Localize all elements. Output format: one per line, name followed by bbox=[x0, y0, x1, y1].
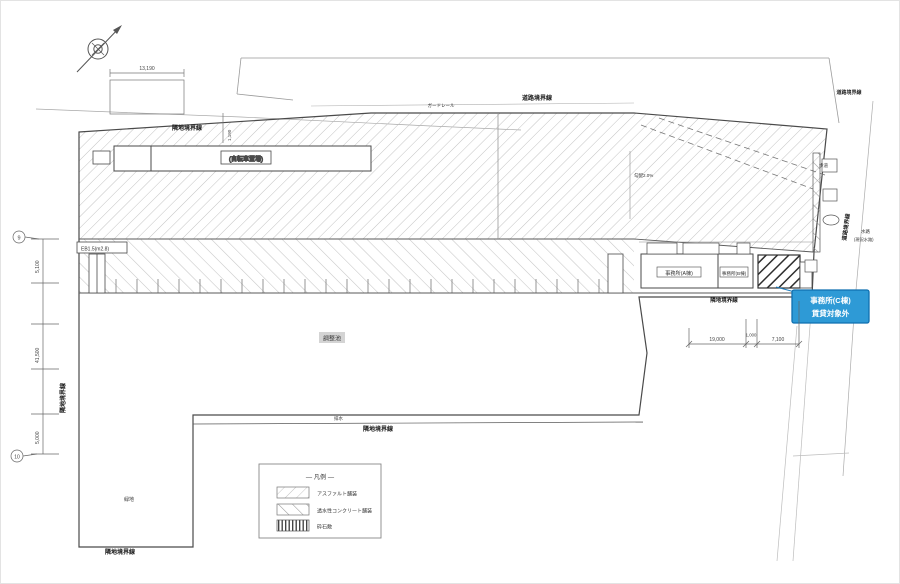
guardrail-label: ガードレール bbox=[428, 102, 455, 109]
legend-swatch-asphalt bbox=[277, 487, 309, 498]
pond-label-group: 調整池 bbox=[319, 332, 345, 343]
ref-mark-top: 9 bbox=[17, 236, 20, 242]
building-c bbox=[758, 255, 812, 292]
legend-label-permeable: 透水性コンクリート舗装 bbox=[317, 508, 372, 515]
boundary-label-top-right: 道路境界線 bbox=[836, 89, 861, 96]
boundary-label-bottom-left: 隣地境界線 bbox=[105, 548, 135, 556]
sidewalk-label: 歩道 bbox=[819, 162, 828, 169]
green-label: 緑地 bbox=[124, 496, 134, 503]
dim-left-mid: 41,500 bbox=[35, 347, 41, 363]
legend: ― 凡例 ― アスファルト舗装 透水性コンクリート舗装 砕石敷 bbox=[259, 464, 381, 538]
callout-building-c: 事務所(C棟) 賃貸対象外 bbox=[792, 290, 869, 323]
dim-br-c: 7,100 bbox=[772, 337, 785, 343]
slope-label: 勾配2.0% bbox=[634, 172, 653, 179]
dim-br-b: 1,000 bbox=[746, 333, 757, 338]
waterway-label-1: 水路 bbox=[861, 228, 870, 235]
boundary-label-bottom-right: 隣地境界線 bbox=[710, 296, 738, 304]
legend-label-asphalt: アスファルト舗装 bbox=[317, 491, 357, 498]
drainage-label: 排水 bbox=[334, 415, 343, 422]
left-note-label: EB1.5(m2.8) bbox=[81, 247, 109, 253]
legend-swatch-gravel bbox=[277, 520, 309, 531]
site-plan-page: (自転車置場) EB1.5(m2.8) 事務所(A棟) 事務所(B棟) 事務所(… bbox=[0, 0, 900, 584]
pond-label: 調整池 bbox=[323, 335, 341, 343]
bicycle-shed-label: (自転車置場) bbox=[229, 155, 263, 163]
dim-br-a: 19,000 bbox=[709, 337, 725, 343]
ref-mark-bottom: 10 bbox=[14, 455, 20, 461]
legend-title: ― 凡例 ― bbox=[306, 473, 335, 481]
legend-label-gravel: 砕石敷 bbox=[317, 524, 332, 531]
left-dimension-chain: 9 10 5,100 41,500 5,000 bbox=[11, 231, 59, 462]
north-arrow-icon bbox=[77, 25, 122, 72]
boundary-label-bottom-main: 隣地境界線 bbox=[363, 425, 393, 433]
boundary-label-top-left: 隣地境界線 bbox=[172, 124, 202, 132]
building-a-label: 事務所(A棟) bbox=[665, 269, 693, 277]
boundary-label-left: 隣地境界線 bbox=[59, 383, 67, 413]
dim-left-bottom: 5,000 bbox=[35, 431, 41, 444]
callout-line1: 事務所(C棟) bbox=[810, 295, 851, 305]
asphalt-area bbox=[79, 113, 827, 252]
bottom-right-dimension: 19,000 1,000 7,100 bbox=[686, 301, 802, 348]
dim-top-width: 13,190 bbox=[139, 66, 155, 72]
callout-line2: 賃貸対象外 bbox=[811, 308, 850, 318]
buildings-ab: 事務所(A棟) 事務所(B棟) bbox=[641, 243, 753, 288]
legend-swatch-permeable bbox=[277, 504, 309, 515]
parking-stall-ticks bbox=[87, 279, 631, 293]
waterway-label-2: (現況水路) bbox=[854, 236, 874, 243]
boundary-label-right-diagonal: 道路境界線 bbox=[840, 212, 852, 241]
building-b-label: 事務所(B棟) bbox=[722, 270, 747, 277]
dim-left-top: 5,100 bbox=[35, 260, 41, 273]
boundary-label-top-mid: 道路境界線 bbox=[522, 94, 552, 102]
site-plan-drawing: (自転車置場) EB1.5(m2.8) 事務所(A棟) 事務所(B棟) 事務所(… bbox=[1, 1, 900, 584]
bicycle-shed: (自転車置場) bbox=[93, 146, 371, 171]
dim-top-offset: 1,190 bbox=[227, 129, 232, 141]
